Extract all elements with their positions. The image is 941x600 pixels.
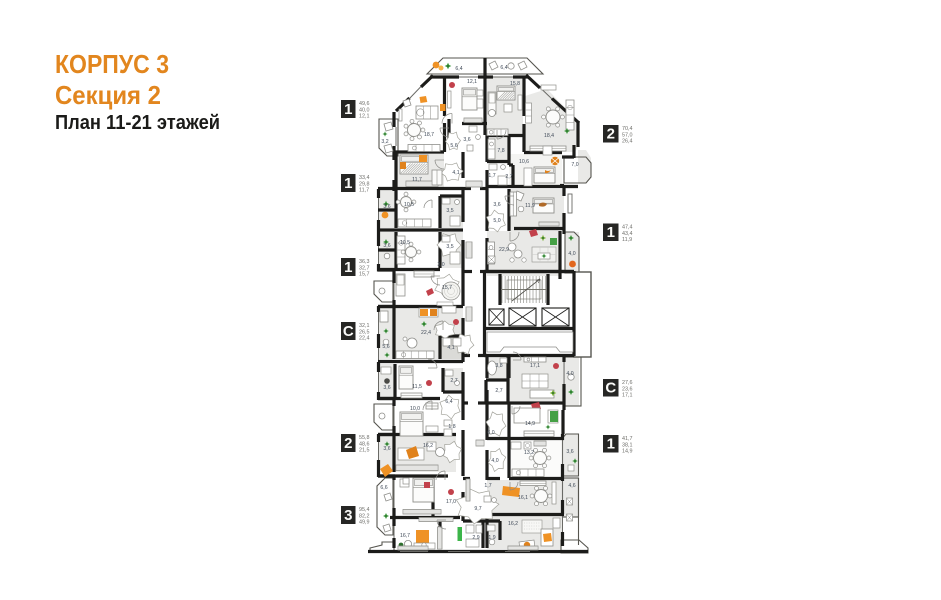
svg-text:55,8: 55,8 bbox=[359, 435, 370, 441]
svg-text:17,1: 17,1 bbox=[530, 363, 540, 369]
svg-text:23,6: 23,6 bbox=[622, 386, 633, 392]
svg-text:16,2: 16,2 bbox=[423, 443, 433, 449]
svg-text:16,1: 16,1 bbox=[518, 495, 528, 501]
svg-text:5,0: 5,0 bbox=[493, 218, 500, 224]
svg-text:41,7: 41,7 bbox=[622, 436, 633, 442]
svg-text:15,7: 15,7 bbox=[359, 271, 370, 277]
svg-text:47,4: 47,4 bbox=[622, 225, 633, 231]
svg-text:22,4: 22,4 bbox=[421, 330, 431, 336]
svg-text:6,4: 6,4 bbox=[445, 399, 452, 405]
svg-text:3,6: 3,6 bbox=[463, 137, 470, 143]
svg-text:6,0: 6,0 bbox=[487, 430, 494, 436]
svg-text:57,0: 57,0 bbox=[622, 132, 633, 138]
svg-text:49,6: 49,6 bbox=[359, 101, 370, 107]
svg-text:82,2: 82,2 bbox=[359, 513, 370, 519]
svg-text:9,7: 9,7 bbox=[474, 506, 481, 512]
svg-text:11,9: 11,9 bbox=[525, 203, 535, 209]
svg-text:10,5: 10,5 bbox=[400, 240, 410, 246]
svg-text:4,0: 4,0 bbox=[566, 371, 573, 377]
svg-text:1,8: 1,8 bbox=[448, 424, 455, 430]
svg-text:3,8: 3,8 bbox=[495, 363, 502, 369]
svg-text:3,6: 3,6 bbox=[566, 449, 573, 455]
svg-text:КОРПУС 3: КОРПУС 3 bbox=[55, 49, 169, 79]
svg-text:4,0: 4,0 bbox=[491, 458, 498, 464]
svg-text:4,1: 4,1 bbox=[452, 170, 459, 176]
svg-text:26,4: 26,4 bbox=[622, 138, 633, 144]
svg-text:49,9: 49,9 bbox=[359, 519, 370, 525]
svg-text:48,6: 48,6 bbox=[359, 441, 370, 447]
svg-text:11,9: 11,9 bbox=[622, 237, 632, 243]
svg-text:4,1: 4,1 bbox=[447, 345, 454, 351]
svg-text:2,7: 2,7 bbox=[495, 388, 502, 394]
svg-text:3,6: 3,6 bbox=[383, 243, 390, 249]
svg-text:1: 1 bbox=[607, 436, 615, 453]
svg-text:12,1: 12,1 bbox=[359, 113, 370, 119]
svg-text:3,5: 3,5 bbox=[446, 244, 453, 250]
svg-text:1,7: 1,7 bbox=[488, 173, 495, 179]
svg-text:1,7: 1,7 bbox=[484, 483, 491, 489]
svg-text:2: 2 bbox=[607, 126, 615, 143]
svg-text:70,4: 70,4 bbox=[622, 126, 633, 132]
svg-text:21,5: 21,5 bbox=[359, 447, 370, 453]
svg-text:3,6: 3,6 bbox=[383, 385, 390, 391]
svg-text:1,9: 1,9 bbox=[488, 535, 495, 541]
svg-text:5,6: 5,6 bbox=[450, 143, 457, 149]
svg-text:27,6: 27,6 bbox=[622, 380, 633, 386]
svg-text:3,6: 3,6 bbox=[493, 202, 500, 208]
svg-text:1: 1 bbox=[344, 175, 352, 192]
svg-text:7,0: 7,0 bbox=[571, 162, 578, 168]
svg-text:16,7: 16,7 bbox=[400, 533, 410, 539]
svg-text:32,7: 32,7 bbox=[359, 265, 370, 271]
svg-text:29,8: 29,8 bbox=[359, 181, 370, 187]
svg-text:13,2: 13,2 bbox=[524, 450, 534, 456]
svg-text:6,4: 6,4 bbox=[455, 66, 462, 72]
svg-text:11,7: 11,7 bbox=[412, 177, 422, 183]
svg-text:38,1: 38,1 bbox=[622, 442, 633, 448]
svg-text:14,9: 14,9 bbox=[525, 421, 535, 427]
svg-text:11,5: 11,5 bbox=[412, 384, 422, 390]
svg-text:4,0: 4,0 bbox=[568, 251, 575, 257]
svg-text:Секция 2: Секция 2 bbox=[55, 80, 161, 110]
svg-text:2,9: 2,9 bbox=[472, 535, 479, 541]
svg-text:15,7: 15,7 bbox=[442, 285, 452, 291]
svg-text:43,4: 43,4 bbox=[622, 231, 633, 237]
svg-text:6,6: 6,6 bbox=[380, 485, 387, 491]
svg-text:5,6: 5,6 bbox=[382, 344, 389, 350]
svg-text:36,3: 36,3 bbox=[359, 259, 370, 265]
svg-text:2,7: 2,7 bbox=[505, 174, 512, 180]
svg-text:10,5: 10,5 bbox=[404, 202, 414, 208]
svg-text:1: 1 bbox=[607, 224, 615, 241]
svg-text:11,7: 11,7 bbox=[359, 187, 369, 193]
svg-text:16,2: 16,2 bbox=[508, 521, 518, 527]
svg-text:3,6: 3,6 bbox=[383, 204, 390, 210]
svg-text:3: 3 bbox=[344, 507, 352, 524]
svg-text:10,6: 10,6 bbox=[519, 159, 529, 165]
svg-text:18,7: 18,7 bbox=[424, 132, 434, 138]
svg-text:План 11-21 этажей: План 11-21 этажей bbox=[55, 111, 220, 134]
svg-text:10,0: 10,0 bbox=[410, 406, 420, 412]
svg-text:33,4: 33,4 bbox=[359, 175, 370, 181]
svg-text:6,4: 6,4 bbox=[500, 65, 507, 71]
svg-text:4,6: 4,6 bbox=[568, 483, 575, 489]
svg-text:7,8: 7,8 bbox=[497, 148, 504, 154]
svg-text:C: C bbox=[343, 323, 354, 340]
svg-text:22,4: 22,4 bbox=[359, 335, 370, 341]
svg-text:3,5: 3,5 bbox=[446, 208, 453, 214]
svg-text:3,2: 3,2 bbox=[381, 139, 388, 145]
svg-text:2: 2 bbox=[344, 435, 352, 452]
svg-text:1: 1 bbox=[344, 101, 352, 118]
svg-text:3,0: 3,0 bbox=[437, 262, 444, 268]
svg-text:14,9: 14,9 bbox=[622, 448, 633, 454]
svg-text:17,1: 17,1 bbox=[622, 392, 633, 398]
svg-text:32,1: 32,1 bbox=[359, 323, 370, 329]
svg-text:2,7: 2,7 bbox=[450, 378, 457, 384]
svg-text:95,4: 95,4 bbox=[359, 507, 370, 513]
svg-text:12,1: 12,1 bbox=[467, 79, 477, 85]
svg-text:18,4: 18,4 bbox=[544, 133, 554, 139]
svg-text:C: C bbox=[605, 380, 616, 397]
svg-text:1: 1 bbox=[344, 259, 352, 276]
svg-text:22,9: 22,9 bbox=[499, 247, 509, 253]
svg-text:15,8: 15,8 bbox=[510, 81, 520, 87]
svg-text:26,5: 26,5 bbox=[359, 329, 370, 335]
svg-text:17,0: 17,0 bbox=[446, 499, 456, 505]
svg-text:40,0: 40,0 bbox=[359, 107, 370, 113]
svg-text:3,6: 3,6 bbox=[383, 446, 390, 452]
